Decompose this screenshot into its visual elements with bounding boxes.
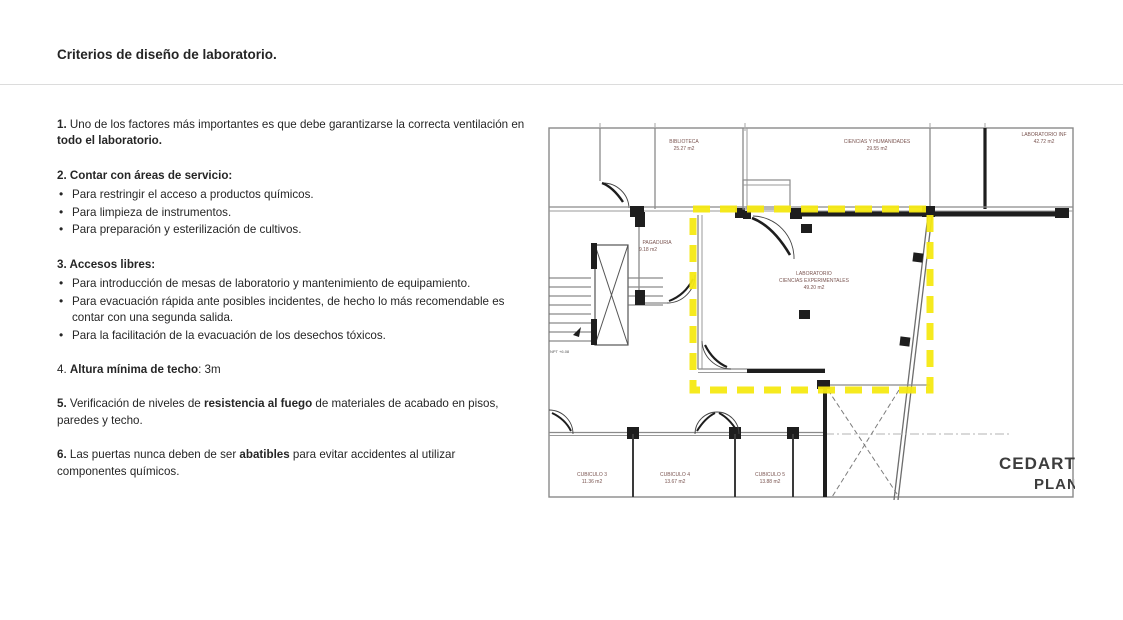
page-title: Criterios de diseño de laboratorio. [57,47,277,62]
text: Las puertas nunca deben de ser [67,448,240,461]
room-area-cubiculo-5: 13.88 m2 [760,479,781,485]
text: Para introducción de mesas de laboratori… [72,277,470,290]
criteria-section: 1. Uno de los factores más importantes e… [57,117,527,150]
criteria-section: 5. Verificación de niveles de resistenci… [57,396,527,429]
room-area-pagaduria: 9.18 m2 [639,247,657,253]
room-label-cubiculo-4: CUBICULO 4 [660,472,690,478]
room-area-cubiculo-3: 11.36 m2 [582,479,603,485]
column-marker [799,310,810,319]
bullet-item: Para limpieza de instrumentos. [57,205,527,221]
bullet-item: Para evacuación rápida ante posibles inc… [57,294,527,327]
text: 4. [57,363,70,376]
bullet-list: Para introducción de mesas de laboratori… [57,276,527,344]
room-area-laboratorio: 49.20 m2 [804,285,825,291]
bold-text: resistencia al fuego [204,397,312,410]
bold-text: 3. Accesos libres: [57,258,155,271]
section-paragraph: 1. Uno de los factores más importantes e… [57,117,527,150]
section-paragraph: 6. Las puertas nunca deben de ser abatib… [57,447,527,480]
bold-text: 1. [57,118,67,131]
room-area-ciencias: 29.55 m2 [867,146,888,152]
watermark-plan: PLAN [1034,476,1075,493]
text: Para evacuación rápida ante posibles inc… [72,295,504,324]
room-label-biblioteca: BIBLIOTECA [669,139,699,145]
room-area-biblioteca: 25.27 m2 [674,146,695,152]
column-marker [801,224,812,233]
watermark-cedart: CEDART [999,454,1075,473]
bold-text: 2. Contar con áreas de servicio: [57,169,232,182]
bold-text: todo el laboratorio. [57,134,162,147]
text: Verificación de niveles de [67,397,204,410]
bullet-item: Para preparación y esterilización de cul… [57,222,527,238]
bullet-item: Para restringir el acceso a productos qu… [57,187,527,203]
text: Para limpieza de instrumentos. [72,206,231,219]
bullet-list: Para restringir el acceso a productos qu… [57,187,527,238]
slide: Criterios de diseño de laboratorio. 1. U… [0,0,1123,620]
room-label-cubiculo-3: CUBICULO 3 [577,472,607,478]
bold-text: 5. [57,397,67,410]
floor-plan-svg: NPT +6.08 [547,123,1075,500]
criteria-section: 3. Accesos libres:Para introducción de m… [57,257,527,344]
level-label: NPT +6.08 [550,349,570,354]
floor-plan-image: NPT +6.08 [547,123,1075,500]
text: Para la facilitación de la evacuación de… [72,329,386,342]
room-area-lab-inf: 42.72 m2 [1034,139,1055,145]
room-label-laboratorio: LABORATORIO [796,271,832,277]
bullet-item: Para la facilitación de la evacuación de… [57,328,527,344]
bullet-item: Para introducción de mesas de laboratori… [57,276,527,292]
section-paragraph: 5. Verificación de niveles de resistenci… [57,396,527,429]
room-label-pagaduria: PAGADURIA [642,240,672,246]
text: Para preparación y esterilización de cul… [72,223,301,236]
title-divider [0,84,1123,85]
bold-text: Altura mínima de techo [70,363,198,376]
criteria-section: 6. Las puertas nunca deben de ser abatib… [57,447,527,480]
bold-text: 6. [57,448,67,461]
criteria-section: 2. Contar con áreas de servicio:Para res… [57,168,527,239]
text: Uno de los factores más importantes es q… [67,118,525,131]
room-label-lab-inf: LABORATORIO INF [1021,132,1066,138]
room-area-cubiculo-4: 13.67 m2 [665,479,686,485]
section-heading: 2. Contar con áreas de servicio: [57,168,527,184]
text: : 3m [198,363,221,376]
room-label-ciencias: CIENCIAS Y HUMANIDADES [844,139,911,145]
text: Para restringir el acceso a productos qu… [72,188,314,201]
room-label-laboratorio-2: CIENCIAS EXPERIMENTALES [779,278,850,284]
section-paragraph: 4. Altura mínima de techo: 3m [57,362,527,378]
section-heading: 3. Accesos libres: [57,257,527,273]
bold-text: abatibles [239,448,289,461]
criteria-section: 4. Altura mínima de techo: 3m [57,362,527,378]
room-label-cubiculo-5: CUBICULO 5 [755,472,785,478]
criteria-sections: 1. Uno de los factores más importantes e… [57,117,527,498]
